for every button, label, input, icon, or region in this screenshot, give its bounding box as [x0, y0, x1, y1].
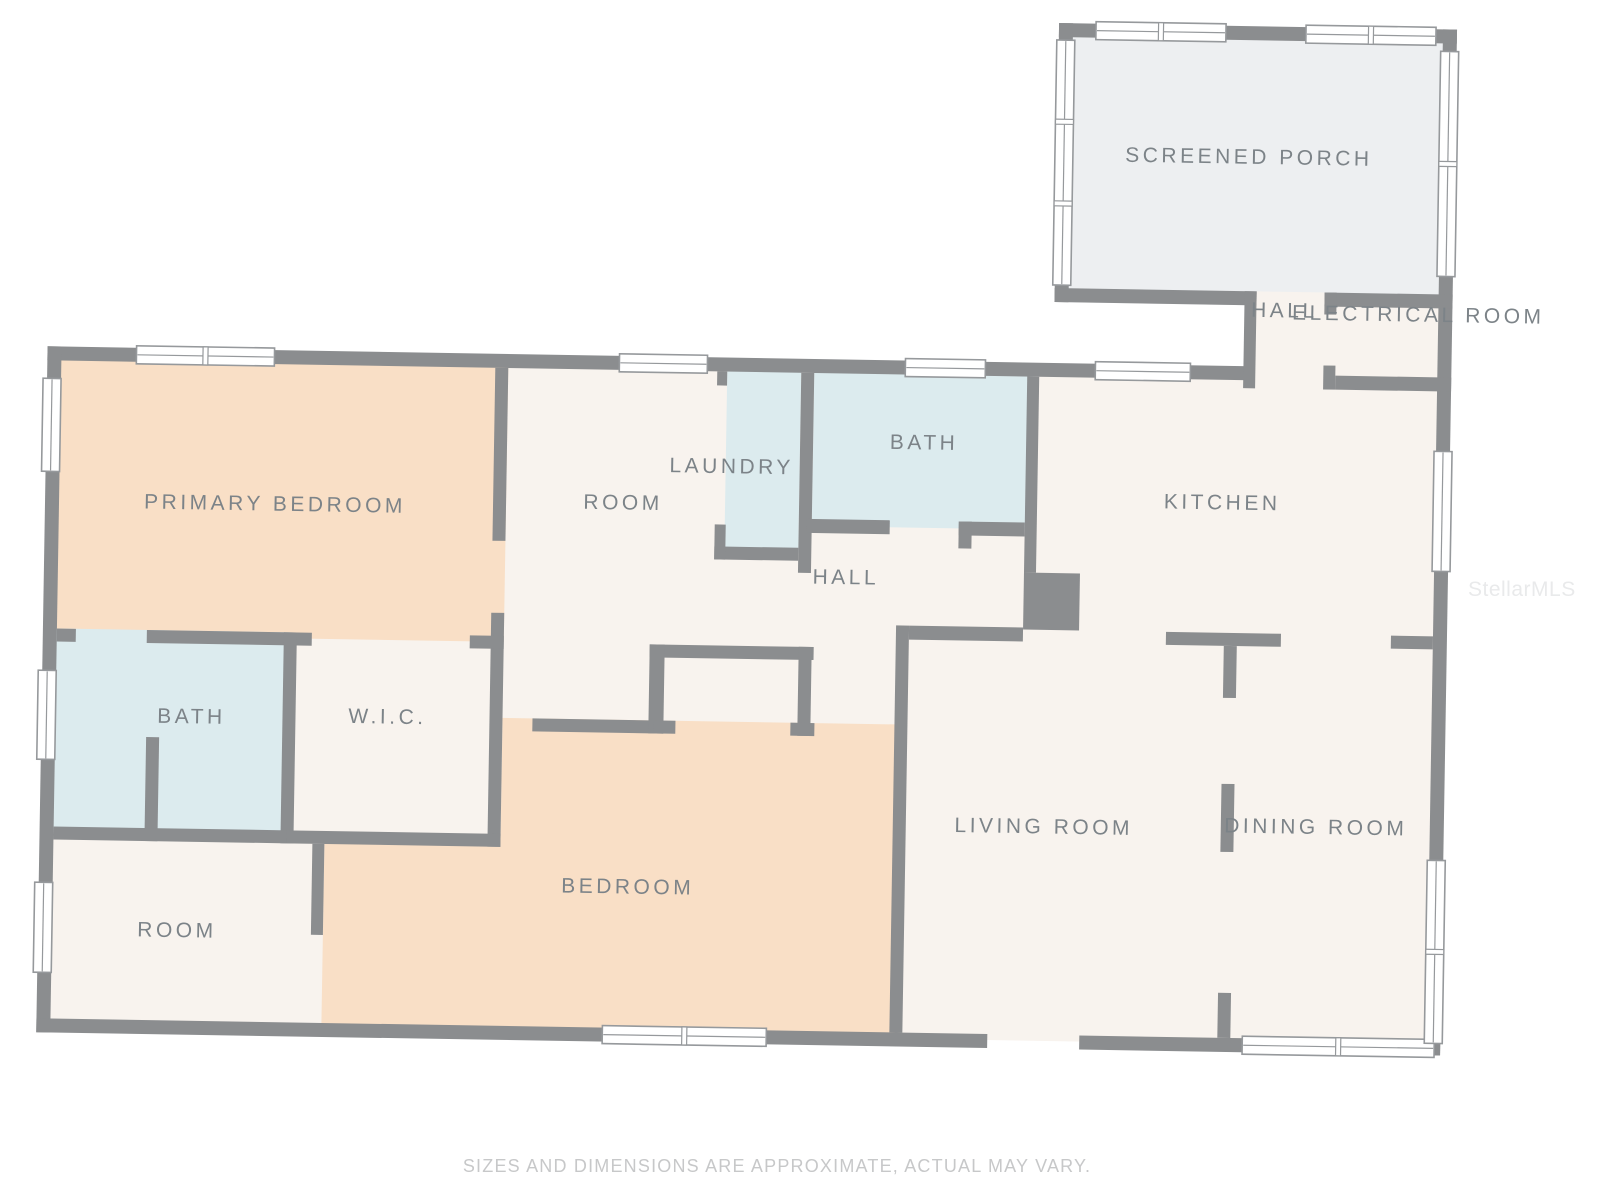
- wall: [311, 844, 325, 935]
- wall: [1335, 376, 1451, 392]
- wall: [1323, 365, 1335, 389]
- room-label-room-lower: ROOM: [137, 918, 217, 942]
- wall: [717, 371, 727, 385]
- wall: [958, 521, 971, 548]
- wall: [144, 737, 159, 841]
- room-label-electrical-room: ELECTRICAL ROOM: [1292, 301, 1545, 328]
- window-mullion: [682, 1027, 687, 1045]
- room-label-bath-upper: BATH: [890, 431, 959, 455]
- wall: [807, 519, 890, 534]
- window: [602, 1026, 766, 1047]
- window: [1095, 362, 1190, 382]
- wall: [470, 635, 504, 649]
- wall: [714, 524, 726, 559]
- wall: [650, 644, 814, 660]
- disclaimer-text: SIZES AND DIMENSIONS ARE APPROXIMATE, AC…: [463, 1156, 1091, 1177]
- floor-plan-svg: SCREENED PORCHHALLELECTRICAL ROOMPRIMARY…: [0, 0, 1600, 1200]
- window: [1096, 22, 1226, 42]
- wall: [653, 720, 675, 733]
- window: [1424, 860, 1445, 1043]
- room-label-bath-left: BATH: [157, 705, 226, 729]
- wall: [648, 644, 664, 733]
- window-mullion: [1055, 119, 1073, 124]
- wall: [532, 718, 663, 733]
- room-label-room-upper: ROOM: [583, 491, 663, 515]
- wall: [1166, 632, 1281, 647]
- window-mullion: [1158, 23, 1163, 41]
- wall: [909, 626, 1023, 642]
- window: [905, 359, 985, 378]
- window: [42, 378, 62, 471]
- room-label-bedroom: BEDROOM: [561, 874, 694, 899]
- wall: [714, 546, 798, 560]
- room-label-primary-bedroom: PRIMARY BEDROOM: [144, 490, 406, 517]
- wall: [1223, 646, 1237, 698]
- window-mullion: [1368, 26, 1373, 44]
- floor-plan-page: SCREENED PORCHHALLELECTRICAL ROOMPRIMARY…: [0, 0, 1600, 1200]
- window: [1306, 25, 1436, 45]
- window: [1432, 451, 1452, 571]
- room-floor: [48, 628, 291, 837]
- wall: [1023, 573, 1080, 631]
- window: [1437, 51, 1459, 276]
- window-mullion: [1439, 161, 1457, 166]
- window: [37, 670, 56, 759]
- window: [33, 882, 52, 972]
- wall: [790, 723, 814, 736]
- wall: [1391, 636, 1433, 650]
- room-label-dining-room: DINING ROOM: [1224, 814, 1408, 840]
- wall: [1217, 993, 1231, 1038]
- window: [136, 346, 274, 366]
- room-label-wic: W.I.C.: [348, 705, 427, 729]
- window: [1242, 1036, 1434, 1057]
- wall: [57, 629, 76, 642]
- window: [1053, 40, 1075, 285]
- wall: [797, 647, 811, 736]
- room-label-hall-middle: HALL: [812, 566, 879, 590]
- window-mullion: [1054, 201, 1072, 206]
- window-mullion: [1426, 949, 1444, 954]
- watermark: StellarMLS: [1468, 578, 1576, 602]
- floor-plan: SCREENED PORCHHALLELECTRICAL ROOMPRIMARY…: [32, 4, 1549, 1059]
- room-label-living-room: LIVING ROOM: [954, 814, 1133, 840]
- window-mullion: [1336, 1038, 1341, 1056]
- room-label-kitchen: KITCHEN: [1164, 490, 1281, 515]
- room-label-laundry: LAUNDRY: [669, 454, 794, 479]
- window-mullion: [203, 347, 208, 365]
- room-label-screened-porch: SCREENED PORCH: [1125, 144, 1373, 171]
- window: [619, 354, 707, 373]
